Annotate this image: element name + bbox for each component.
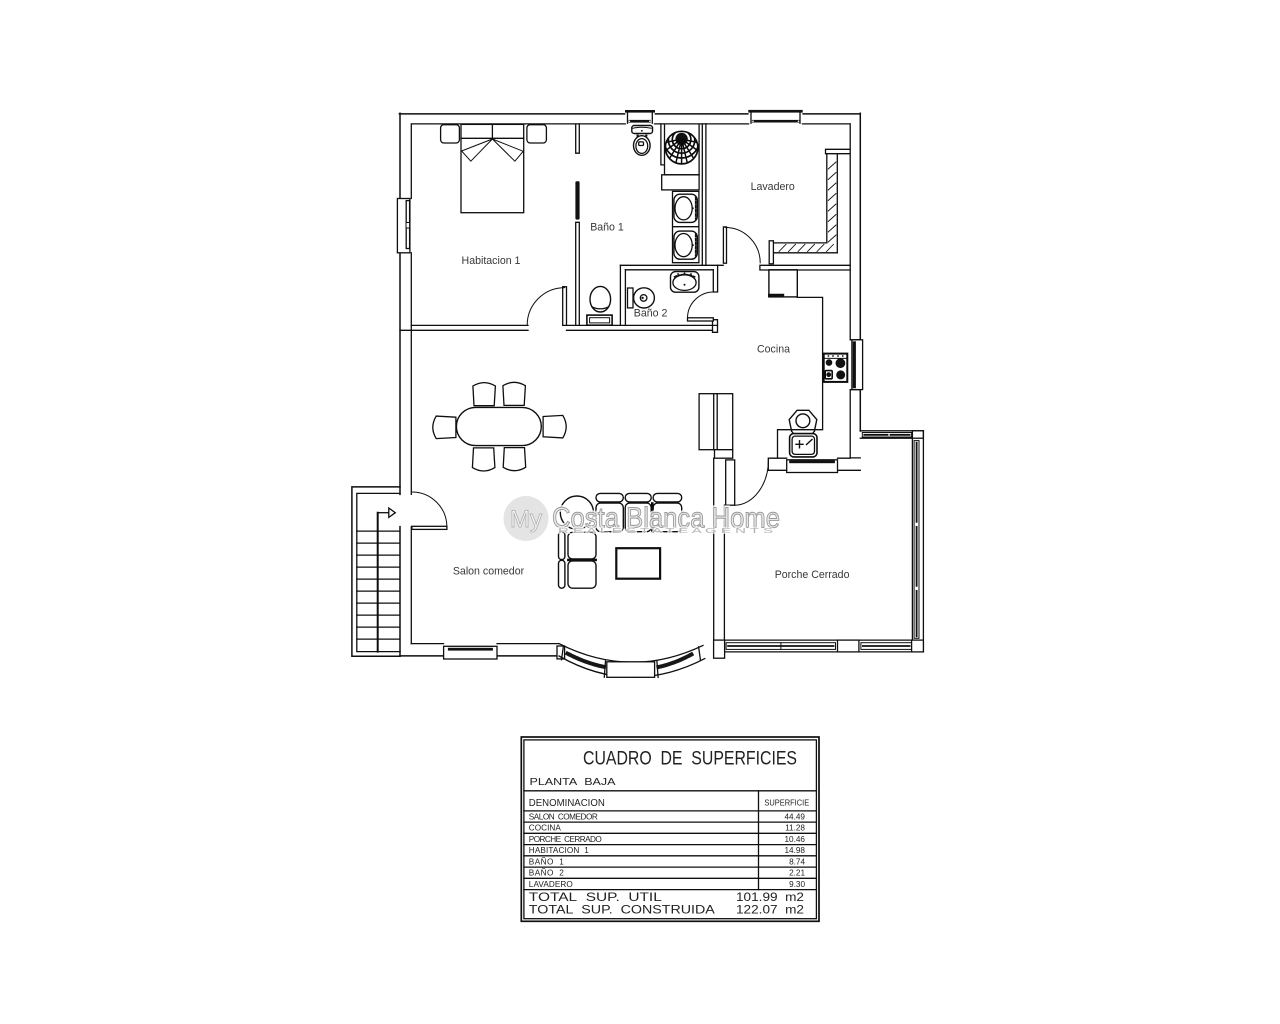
svg-text:122.07 m2: 122.07 m2	[736, 902, 804, 916]
svg-text:2.21: 2.21	[789, 869, 805, 878]
svg-text:Lavadero: Lavadero	[751, 181, 795, 193]
svg-text:SALON COMEDOR: SALON COMEDOR	[529, 812, 598, 821]
svg-text:Porche Cerrado: Porche Cerrado	[775, 569, 850, 581]
svg-text:PLANTA BAJA: PLANTA BAJA	[530, 776, 616, 788]
svg-text:CUADRO DE SUPERFICIES: CUADRO DE SUPERFICIES	[583, 748, 797, 770]
svg-text:Habitacion 1: Habitacion 1	[462, 255, 521, 267]
svg-text:Baño 1: Baño 1	[590, 221, 624, 233]
svg-text:TOTAL SUP. CONSTRUIDA: TOTAL SUP. CONSTRUIDA	[529, 902, 715, 916]
svg-text:11.28: 11.28	[785, 824, 805, 833]
svg-text:COCINA: COCINA	[529, 824, 562, 833]
svg-text:LAVADERO: LAVADERO	[529, 880, 573, 889]
svg-text:PORCHE CERRADO: PORCHE CERRADO	[529, 835, 602, 844]
svg-text:14.98: 14.98	[785, 846, 806, 855]
svg-text:10.46: 10.46	[785, 835, 806, 844]
svg-text:BAÑO 2: BAÑO 2	[529, 868, 564, 878]
svg-text:9.30: 9.30	[789, 880, 805, 889]
svg-text:Cocina: Cocina	[757, 343, 790, 355]
svg-text:SUPERFICIE: SUPERFICIE	[764, 798, 809, 807]
svg-text:My: My	[510, 506, 542, 533]
svg-text:DENOMINACION: DENOMINACION	[529, 798, 605, 809]
svg-text:HABITACION 1: HABITACION 1	[529, 846, 589, 855]
svg-text:BAÑO 1: BAÑO 1	[529, 856, 564, 866]
svg-text:8.74: 8.74	[789, 857, 805, 866]
svg-text:Salon comedor: Salon comedor	[453, 565, 525, 577]
svg-text:Baño 2: Baño 2	[634, 307, 668, 319]
svg-text:44.49: 44.49	[785, 812, 806, 821]
svg-text:R E A L E S T A T E A G: R E A L E S T A T E A G E N T S	[558, 526, 773, 535]
